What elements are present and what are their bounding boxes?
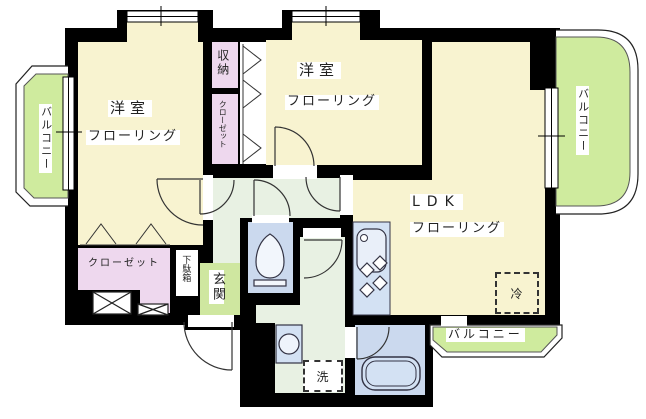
hallway-floor (213, 178, 340, 218)
balcony-right-outline (556, 30, 638, 214)
closet-side-label: クローゼット (218, 98, 227, 150)
toilet-room-floor (248, 222, 293, 293)
washroom-floor-vanity (275, 323, 302, 393)
refrigerator-label: 冷 (510, 285, 523, 302)
bathroom-floor (355, 325, 425, 395)
refrigerator-box: 冷 (495, 272, 539, 314)
shoe-cabinet-label: 下駄箱 (180, 253, 190, 284)
ldk-name: LDK (410, 194, 463, 210)
wall-corner-top-right (530, 28, 560, 90)
washer-label: 洗 (316, 368, 329, 385)
floor-plan: 洋室 フローリング 洋室 フローリング LDK フローリング 収納 クローゼット… (0, 0, 646, 419)
balcony-bottom-label: バルコニー (446, 328, 525, 342)
balcony-right-label: バルコニー (576, 86, 589, 155)
bedroom-left-window-notch (127, 22, 198, 46)
closet-bottom-label: クローゼット (86, 258, 162, 270)
kitchen-counter (353, 222, 390, 315)
washer-box: 洗 (303, 360, 343, 392)
bedroom-left-name: 洋室 (108, 100, 152, 117)
bedroom-left-floor-label: フローリング (86, 130, 180, 145)
ldk-floor-label: フローリング (410, 222, 504, 237)
balcony-left-label: バルコニー (39, 104, 52, 173)
hallway-floor-lower (213, 218, 240, 263)
washroom-floor-strip (256, 305, 300, 323)
bedroom-center-window-notch (292, 22, 360, 44)
bedroom-center-name: 洋室 (297, 62, 341, 79)
bedroom-center-floor-label: フローリング (285, 95, 379, 110)
storage-label: 収納 (215, 47, 229, 79)
ldk-floor-upper (432, 42, 530, 94)
entrance-label: 玄関 (209, 270, 224, 304)
closet-folding-door-strip (240, 42, 266, 164)
